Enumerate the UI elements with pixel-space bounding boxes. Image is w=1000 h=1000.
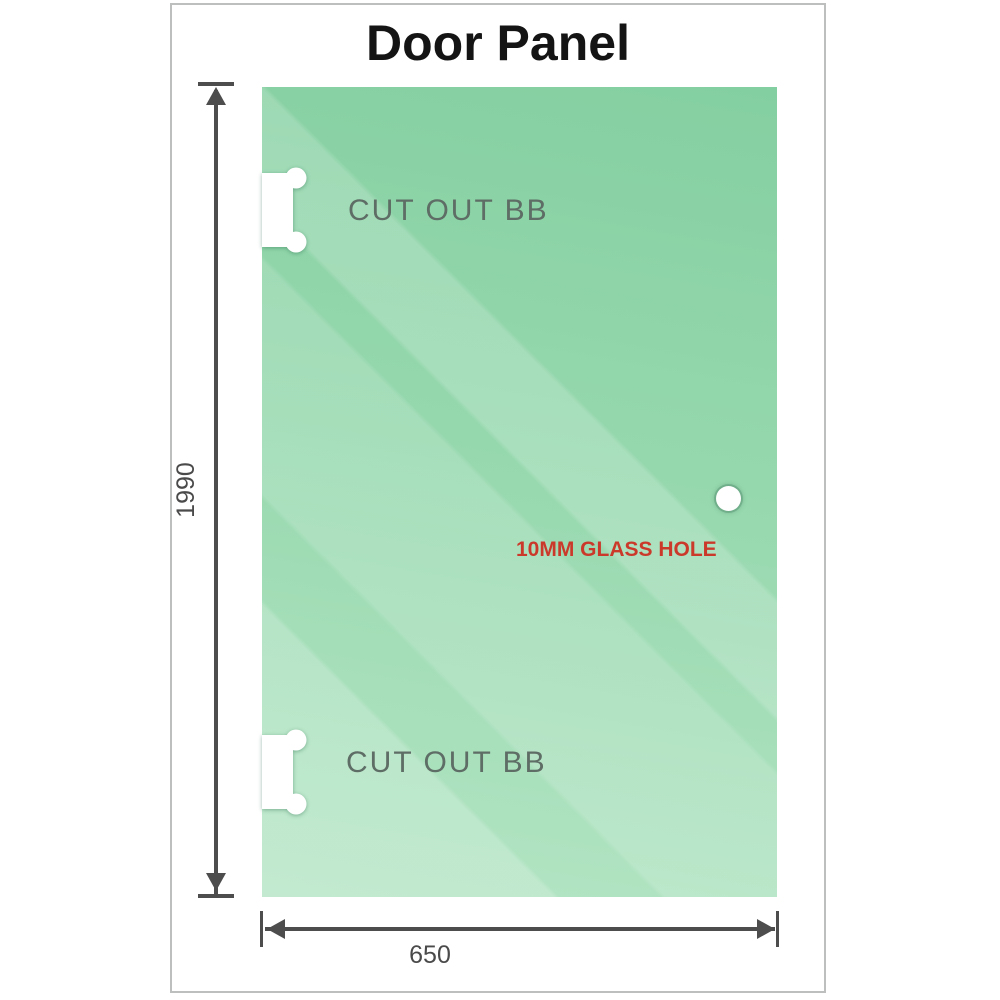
cutout-label-top: CUT OUT BB xyxy=(348,194,549,228)
height-dimension-cap-bottom xyxy=(198,894,234,898)
width-dimension-tick-left xyxy=(260,911,263,947)
door-panel-drawing: Door Panel CUT OUT BB CUT OUT BB 10MM GL… xyxy=(0,0,1000,1000)
cutout-lobe-top xyxy=(286,730,307,751)
width-dimension-value: 650 xyxy=(380,941,480,970)
cutout-label-bottom: CUT OUT BB xyxy=(346,746,547,780)
height-dimension-cap-top xyxy=(198,82,234,86)
glass-hole xyxy=(716,486,741,511)
height-dimension-line xyxy=(214,90,218,896)
width-dimension-line xyxy=(265,927,775,931)
width-dimension-tick-right xyxy=(776,911,779,947)
page-title: Door Panel xyxy=(170,14,826,72)
height-dimension-value: 1990 xyxy=(173,430,199,550)
glass-panel: CUT OUT BB CUT OUT BB 10MM GLASS HOLE xyxy=(262,87,777,897)
arrow-down-icon xyxy=(206,873,226,891)
hinge-cutout-top xyxy=(262,167,308,253)
arrow-right-icon xyxy=(757,919,775,939)
cutout-lobe-bottom xyxy=(286,232,307,253)
hinge-cutout-bottom xyxy=(262,729,308,815)
cutout-lobe-bottom xyxy=(286,794,307,815)
cutout-lobe-top xyxy=(286,168,307,189)
glass-hole-label: 10MM GLASS HOLE xyxy=(516,538,717,562)
